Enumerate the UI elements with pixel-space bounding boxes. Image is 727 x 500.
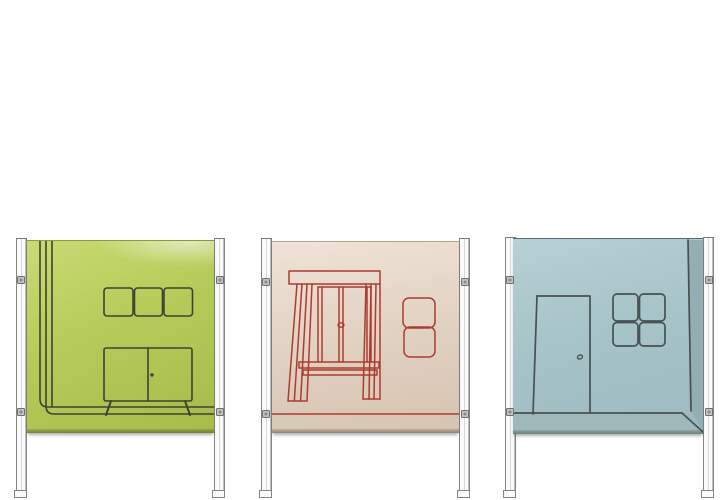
cream-panel-drawing — [272, 242, 459, 433]
mounting-bolt — [262, 278, 270, 286]
pelmet-drawing — [289, 271, 380, 284]
door-handle — [577, 354, 583, 360]
mounting-bolt — [17, 276, 25, 284]
green-panel-drawing — [27, 241, 214, 433]
window-latch — [338, 323, 344, 327]
mounting-bolt — [506, 276, 514, 284]
panel-bottom-edge — [27, 429, 214, 433]
metal-post-left — [16, 238, 27, 498]
panel-bottom-edge — [272, 429, 459, 433]
mounting-bolt — [17, 408, 25, 416]
window-sill-drawing — [299, 362, 379, 375]
mounting-bolt — [705, 276, 713, 284]
panel-canvas-green — [27, 240, 214, 433]
metal-post-right — [703, 237, 714, 498]
left-curtain-drawing — [288, 284, 312, 401]
metal-post-right — [214, 238, 225, 498]
floor-strip — [513, 413, 703, 434]
post-foot — [14, 490, 27, 498]
mounting-bolt — [461, 410, 469, 418]
sideboard-drawing — [104, 348, 192, 415]
mounting-bolt — [262, 410, 270, 418]
blue-panel-drawing — [513, 239, 703, 434]
corner-wall-shade — [688, 240, 703, 432]
gloss-highlight — [27, 241, 214, 433]
panel-canvas-cream — [272, 241, 459, 433]
cabinet-leg-left — [106, 401, 111, 415]
mounting-bolt — [216, 408, 224, 416]
panel-bottom-edge — [513, 430, 703, 434]
divider-screen-cream — [0, 0, 727, 500]
door-drawing — [533, 296, 590, 414]
right-curtain-drawing — [363, 284, 380, 399]
metal-post-left — [505, 237, 516, 498]
wall-shelf-drawing — [104, 288, 193, 316]
metal-post-right — [459, 238, 470, 498]
post-foot — [457, 490, 470, 498]
divider-screen-blue — [0, 0, 727, 500]
cabinet-leg-right — [185, 401, 190, 415]
wall-corner-lines — [40, 241, 214, 414]
window-drawing — [318, 287, 371, 362]
cabinet-knob — [150, 373, 153, 376]
four-pane-window-drawing — [613, 294, 665, 346]
mounting-bolt — [216, 276, 224, 284]
room-corner-line — [513, 240, 703, 432]
mounting-bolt — [506, 408, 514, 416]
post-foot — [503, 490, 516, 498]
picture-frames-drawing — [403, 298, 435, 357]
metal-post-left — [261, 238, 272, 498]
panel-canvas-blue — [513, 238, 703, 434]
post-foot — [259, 490, 272, 498]
mounting-bolt — [461, 278, 469, 286]
post-foot — [212, 490, 225, 498]
post-foot — [701, 490, 714, 498]
scene — [0, 0, 727, 500]
mounting-bolt — [705, 408, 713, 416]
divider-screen-green — [0, 0, 727, 500]
